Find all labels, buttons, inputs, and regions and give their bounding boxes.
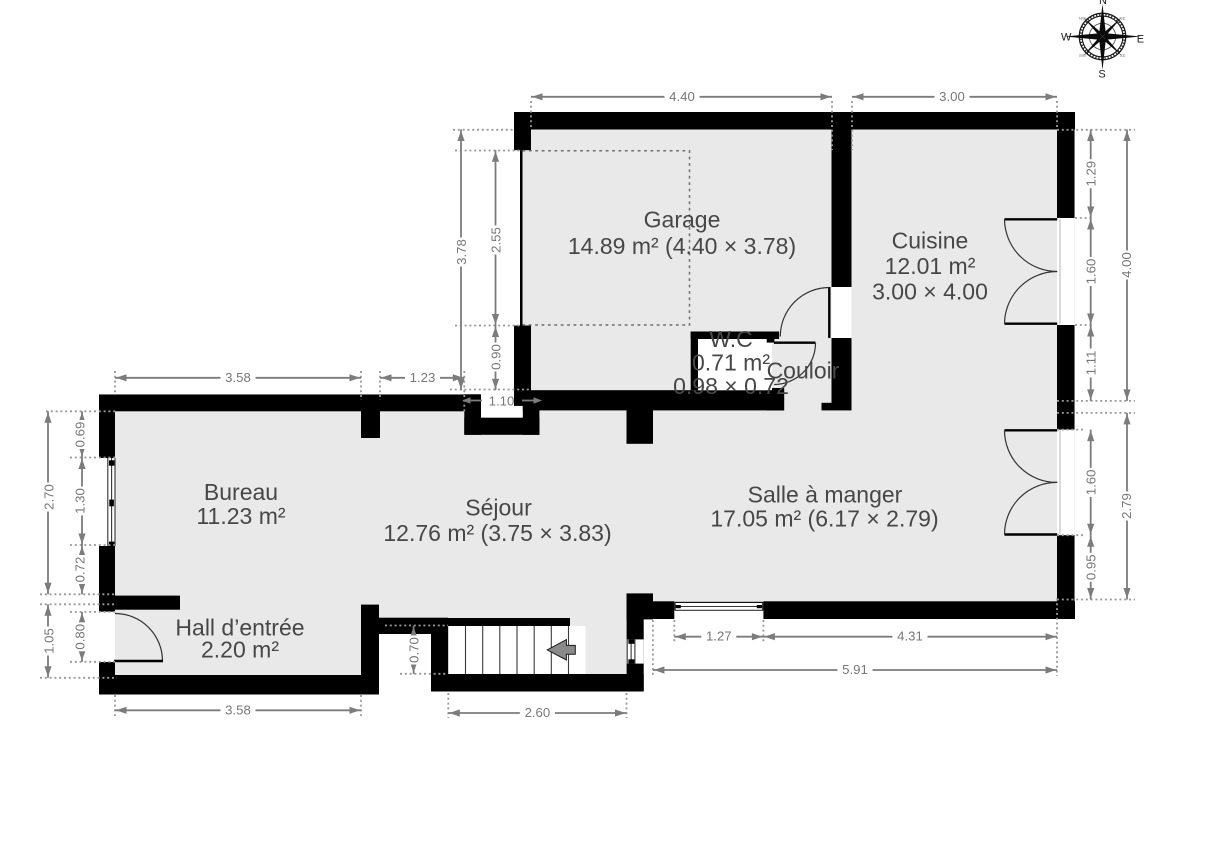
svg-text:SW: SW (1079, 53, 1087, 58)
svg-text:SE: SE (1119, 53, 1125, 58)
svg-text:12.01 m²: 12.01 m² (885, 253, 976, 279)
svg-text:0.69: 0.69 (73, 422, 88, 448)
svg-text:4.31: 4.31 (897, 629, 923, 644)
svg-text:3.58: 3.58 (225, 370, 251, 385)
svg-text:NE: NE (1119, 16, 1125, 21)
svg-text:1.10: 1.10 (489, 394, 515, 409)
svg-text:Garage: Garage (644, 207, 721, 233)
svg-text:2.55: 2.55 (489, 227, 504, 253)
svg-text:2.20 m²: 2.20 m² (201, 637, 279, 663)
svg-text:2.60: 2.60 (525, 705, 551, 720)
svg-text:17.05 m² (6.17 × 2.79): 17.05 m² (6.17 × 2.79) (710, 506, 938, 532)
svg-text:1.23: 1.23 (410, 370, 436, 385)
svg-text:Salle à manger: Salle à manger (748, 482, 903, 508)
svg-text:0.80: 0.80 (73, 624, 88, 650)
svg-text:3.58: 3.58 (225, 702, 251, 717)
svg-text:0.72: 0.72 (73, 557, 88, 583)
svg-text:1.05: 1.05 (42, 628, 57, 654)
svg-text:1.60: 1.60 (1084, 470, 1099, 496)
svg-text:Bureau: Bureau (204, 479, 278, 505)
svg-text:NW: NW (1079, 16, 1087, 21)
svg-text:Cuisine: Cuisine (892, 228, 969, 254)
svg-text:0.70: 0.70 (407, 637, 422, 663)
svg-text:11.23 m²: 11.23 m² (196, 503, 285, 529)
svg-text:1.27: 1.27 (706, 629, 732, 644)
svg-text:Couloir: Couloir (767, 358, 840, 384)
svg-text:14.89 m² (4.40 × 3.78): 14.89 m² (4.40 × 3.78) (568, 233, 796, 259)
svg-text:4.00: 4.00 (1119, 252, 1134, 278)
svg-text:1.29: 1.29 (1084, 161, 1099, 187)
svg-text:4.40: 4.40 (669, 89, 695, 104)
svg-text:3.78: 3.78 (454, 239, 469, 265)
svg-text:W.C: W.C (709, 326, 752, 352)
svg-text:2.79: 2.79 (1119, 493, 1134, 519)
svg-text:0.71 m²: 0.71 m² (692, 350, 770, 376)
svg-text:W: W (1061, 32, 1072, 44)
svg-text:N: N (1099, 0, 1107, 7)
svg-text:3.00: 3.00 (939, 89, 965, 104)
svg-text:0.95: 0.95 (1084, 554, 1099, 580)
svg-text:S: S (1098, 69, 1105, 81)
svg-text:1.30: 1.30 (73, 488, 88, 514)
svg-text:2.70: 2.70 (42, 484, 57, 510)
svg-text:Séjour: Séjour (465, 495, 532, 521)
svg-text:12.76 m² (3.75 × 3.83): 12.76 m² (3.75 × 3.83) (383, 520, 611, 546)
svg-text:1.11: 1.11 (1084, 351, 1099, 376)
svg-text:0.90: 0.90 (489, 344, 504, 370)
svg-text:E: E (1137, 34, 1144, 46)
svg-text:1.60: 1.60 (1084, 259, 1099, 285)
svg-text:3.00 × 4.00: 3.00 × 4.00 (872, 279, 988, 305)
svg-text:5.91: 5.91 (842, 662, 868, 677)
